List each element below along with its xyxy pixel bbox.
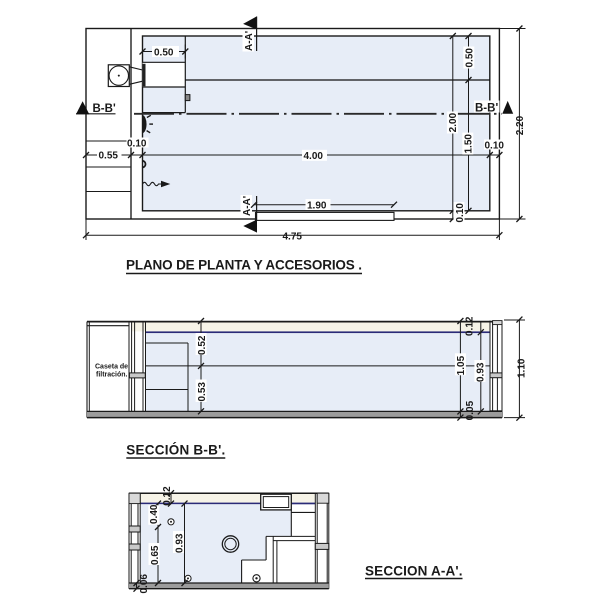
svg-text:A-A': A-A'	[244, 31, 255, 51]
svg-text:0.10: 0.10	[455, 203, 466, 223]
svg-text:0.50: 0.50	[465, 48, 476, 68]
svg-text:0.10: 0.10	[485, 141, 505, 152]
svg-text:0.40: 0.40	[149, 504, 160, 524]
svg-text:A-A': A-A'	[242, 196, 253, 216]
svg-text:1.05: 1.05	[456, 355, 467, 375]
svg-text:0.93: 0.93	[174, 533, 185, 553]
svg-text:0.50: 0.50	[154, 48, 174, 59]
svg-text:0.10: 0.10	[127, 139, 147, 150]
svg-text:B-B': B-B'	[93, 103, 116, 115]
svg-text:Caseta de: Caseta de	[95, 364, 128, 371]
svg-text:1.10: 1.10	[517, 358, 528, 378]
svg-text:0.06: 0.06	[139, 574, 150, 594]
svg-text:1.90: 1.90	[307, 201, 327, 212]
svg-text:0.12: 0.12	[465, 316, 476, 336]
svg-text:4.75: 4.75	[283, 232, 303, 243]
svg-text:0.12: 0.12	[162, 486, 173, 506]
svg-text:0.93: 0.93	[476, 362, 487, 382]
svg-text:SECCION A-A'.: SECCION A-A'.	[365, 564, 463, 579]
svg-text:SECCIÓN B-B'.: SECCIÓN B-B'.	[126, 443, 225, 458]
svg-text:0.05: 0.05	[465, 400, 476, 420]
svg-text:2.00: 2.00	[448, 112, 459, 132]
svg-text:2.20: 2.20	[515, 115, 526, 135]
svg-text:B-B': B-B'	[475, 103, 498, 115]
svg-text:0.53: 0.53	[197, 382, 208, 402]
svg-text:4.00: 4.00	[304, 151, 324, 162]
svg-text:0.65: 0.65	[150, 545, 161, 565]
svg-text:PLANO DE PLANTA Y ACCESORIOS .: PLANO DE PLANTA Y ACCESORIOS .	[126, 258, 362, 273]
svg-text:0.55: 0.55	[99, 150, 119, 161]
svg-text:0.52: 0.52	[197, 335, 208, 355]
svg-text:1.50: 1.50	[464, 134, 475, 154]
svg-text:filtración.: filtración.	[96, 372, 128, 379]
